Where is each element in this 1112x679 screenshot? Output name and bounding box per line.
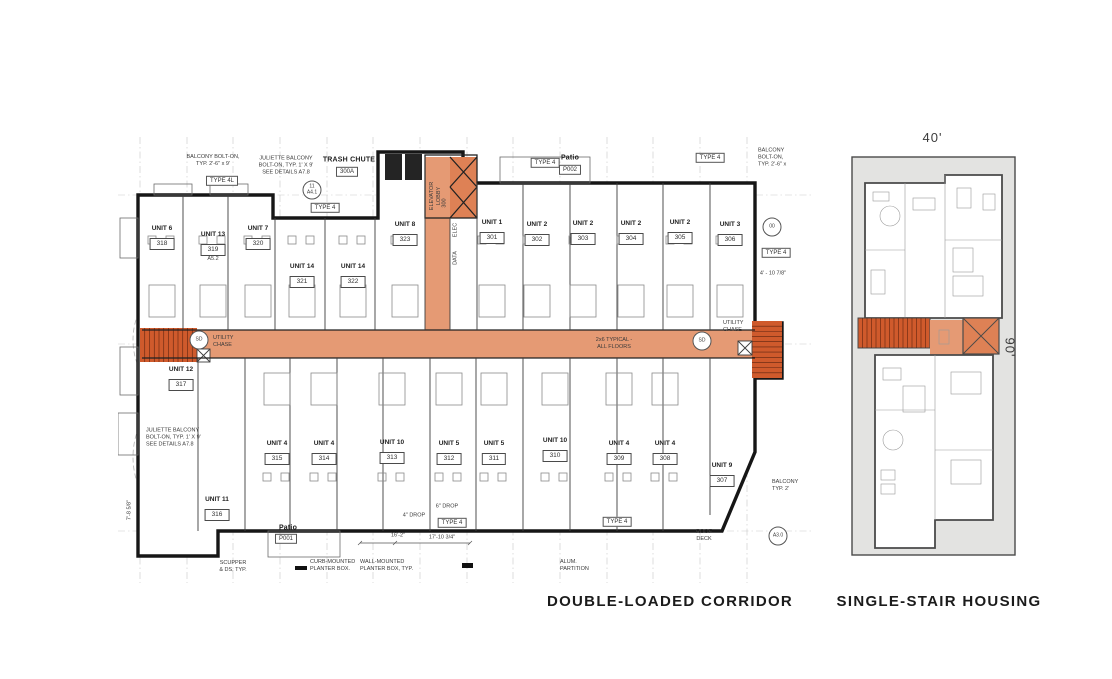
unit-number: 320 xyxy=(246,238,271,250)
unit-detail-tag: A5.2 xyxy=(201,256,226,262)
unit-name: UNIT 2 xyxy=(525,221,550,228)
unit-name: UNIT 7 xyxy=(246,225,271,232)
unit-name: UNIT 6 xyxy=(150,225,175,232)
annotation: UTILITY CHASE xyxy=(213,335,233,349)
annotation: BALCONY BOLT-ON, TYP. 2'-6" x 9' xyxy=(187,154,240,168)
unit-label-320: UNIT 7320 xyxy=(246,225,271,250)
annotation: 17'-10 3/4" xyxy=(429,534,455,541)
unit-number: 312 xyxy=(437,453,462,465)
unit-label-313: UNIT 10313 xyxy=(380,439,405,464)
unit-label-314: UNIT 4314 xyxy=(312,440,337,465)
unit-number: 317 xyxy=(169,379,194,391)
unit-label-322: UNIT 14322 xyxy=(341,263,366,288)
unit-label-306: UNIT 3306 xyxy=(718,221,743,246)
unit-name: UNIT 14 xyxy=(341,263,366,270)
unit-name: UNIT 1 xyxy=(480,219,505,226)
unit-number: 322 xyxy=(341,276,366,288)
annotation: 300A xyxy=(336,167,358,177)
unit-name: UNIT 11 xyxy=(205,496,230,503)
unit-number: 302 xyxy=(525,234,550,246)
unit-name: UNIT 2 xyxy=(619,220,644,227)
annotation: ALUM. PARTITION xyxy=(560,559,589,573)
annotation: JULIETTE BALCONY BOLT-ON, TYP. 1' X 9' S… xyxy=(259,155,314,176)
annotation: 4" DROP xyxy=(403,512,425,519)
annotation: 4' - 10 7/8" xyxy=(760,270,786,277)
annotation: 300 xyxy=(441,198,448,207)
unit-name: UNIT 3 xyxy=(718,221,743,228)
unit-name: UNIT 9 xyxy=(710,462,735,469)
unit-label-302: UNIT 2302 xyxy=(525,221,550,246)
unit-number: 307 xyxy=(710,475,735,487)
annotation: P002 xyxy=(559,165,581,175)
annotation: TYPE 4 xyxy=(531,158,560,168)
unit-label-304: UNIT 2304 xyxy=(619,220,644,245)
annotation: TYPE 4 xyxy=(696,153,725,163)
annotation: P001 xyxy=(275,534,297,544)
unit-name: UNIT 2 xyxy=(668,219,693,226)
unit-name: UNIT 4 xyxy=(312,440,337,447)
unit-name: UNIT 4 xyxy=(265,440,290,447)
width-dimension: 40' xyxy=(845,130,1020,145)
annotation: DATA xyxy=(452,251,459,265)
annotation: 2x6 TYPICAL - ALL FLOORS xyxy=(596,337,632,351)
annotation: SD xyxy=(190,331,209,350)
unit-number: 301 xyxy=(480,232,505,244)
annotation: 16'-2" xyxy=(391,532,405,539)
unit-label-311: UNIT 5311 xyxy=(482,440,506,465)
unit-number: 318 xyxy=(150,238,175,250)
unit-name: UNIT 5 xyxy=(482,440,506,447)
annotation: 11 A4.1 xyxy=(303,181,322,200)
unit-label-323: UNIT 8323 xyxy=(393,221,418,246)
unit-label-310: UNIT 10310 xyxy=(543,437,568,462)
unit-name: UNIT 4 xyxy=(607,440,632,447)
unit-number: 311 xyxy=(482,453,506,465)
unit-number: 315 xyxy=(265,453,290,465)
unit-number: 305 xyxy=(668,232,693,244)
unit-number: 310 xyxy=(543,450,568,462)
annotation: WALL-MOUNTED PLANTER BOX, TYP. xyxy=(360,559,413,573)
unit-label-318: UNIT 6318 xyxy=(150,225,175,250)
unit-name: UNIT 8 xyxy=(393,221,418,228)
unit-number: 323 xyxy=(393,234,418,246)
unit-name: UNIT 10 xyxy=(380,439,405,446)
annotation: SCUPPER & DS, TYP. xyxy=(219,560,246,574)
annotation: ELEC xyxy=(452,223,459,237)
unit-number: 314 xyxy=(312,453,337,465)
annotation: A3.0 xyxy=(769,527,788,546)
unit-name: UNIT 12 xyxy=(169,366,194,373)
annotation: TYPE 4 xyxy=(311,203,340,213)
unit-label-305: UNIT 2305 xyxy=(668,219,693,244)
unit-name: UNIT 2 xyxy=(571,220,596,227)
unit-label-316: UNIT 11316 xyxy=(205,496,230,521)
annotation: TYPE 4 xyxy=(603,517,632,527)
annotation: 00 xyxy=(763,218,782,237)
unit-label-321: UNIT 14321 xyxy=(290,263,315,288)
unit-number: 304 xyxy=(619,233,644,245)
annotation: SD xyxy=(693,332,712,351)
annotation: JULIETTE BALCONY BOLT-ON, TYP. 1' X 9' S… xyxy=(146,427,201,448)
height-dimension: 90' xyxy=(1002,338,1017,358)
annotation: TRASH CHUTE xyxy=(323,155,375,164)
unit-label-308: UNIT 4308 xyxy=(653,440,678,465)
annotation: TYPE 4 xyxy=(762,248,791,258)
unit-number: 308 xyxy=(653,453,678,465)
annotation: ROOF DECK xyxy=(696,529,712,543)
unit-name: UNIT 10 xyxy=(543,437,568,444)
annotation: BALCONY TYP. 2' xyxy=(772,479,798,493)
unit-number: 321 xyxy=(290,276,315,288)
unit-number: 319 xyxy=(201,244,226,256)
annotation: TYPE 4 xyxy=(438,518,467,528)
caption-double-loaded-corridor: DOUBLE-LOADED CORRIDOR xyxy=(520,593,820,610)
caption-single-stair-housing: SINGLE-STAIR HOUSING xyxy=(808,593,1070,610)
unit-number: 303 xyxy=(571,233,596,245)
unit-number: 306 xyxy=(718,234,743,246)
unit-label-315: UNIT 4315 xyxy=(265,440,290,465)
annotation: UTILITY CHASE xyxy=(723,320,743,334)
unit-label-307: UNIT 9307 xyxy=(710,462,735,487)
annotation: 7'-8 5/8" xyxy=(126,500,133,520)
unit-number: 309 xyxy=(607,453,632,465)
annotation: Patio xyxy=(279,523,297,532)
annotation: BALCONY BOLT-ON, TYP. 2'-6" x xyxy=(758,147,786,168)
annotation: 6" DROP xyxy=(436,503,458,510)
unit-label-317: UNIT 12317 xyxy=(169,366,194,391)
unit-label-319: UNIT 13319A5.2 xyxy=(201,231,226,262)
annotation: CURB-MOUNTED PLANTER BOX. xyxy=(310,559,355,573)
unit-label-309: UNIT 4309 xyxy=(607,440,632,465)
unit-label-312: UNIT 5312 xyxy=(437,440,462,465)
unit-label-301: UNIT 1301 xyxy=(480,219,505,244)
unit-name: UNIT 5 xyxy=(437,440,462,447)
annotation-layer: UNIT 6318UNIT 13319A5.2UNIT 7320UNIT 143… xyxy=(0,0,1112,679)
annotation: Patio xyxy=(561,153,579,162)
annotation: TYPE 4L xyxy=(206,176,238,186)
figure-canvas: UNIT 6318UNIT 13319A5.2UNIT 7320UNIT 143… xyxy=(0,0,1112,679)
unit-label-303: UNIT 2303 xyxy=(571,220,596,245)
unit-number: 313 xyxy=(380,452,405,464)
unit-number: 316 xyxy=(205,509,230,521)
unit-name: UNIT 13 xyxy=(201,231,226,238)
unit-name: UNIT 4 xyxy=(653,440,678,447)
unit-name: UNIT 14 xyxy=(290,263,315,270)
